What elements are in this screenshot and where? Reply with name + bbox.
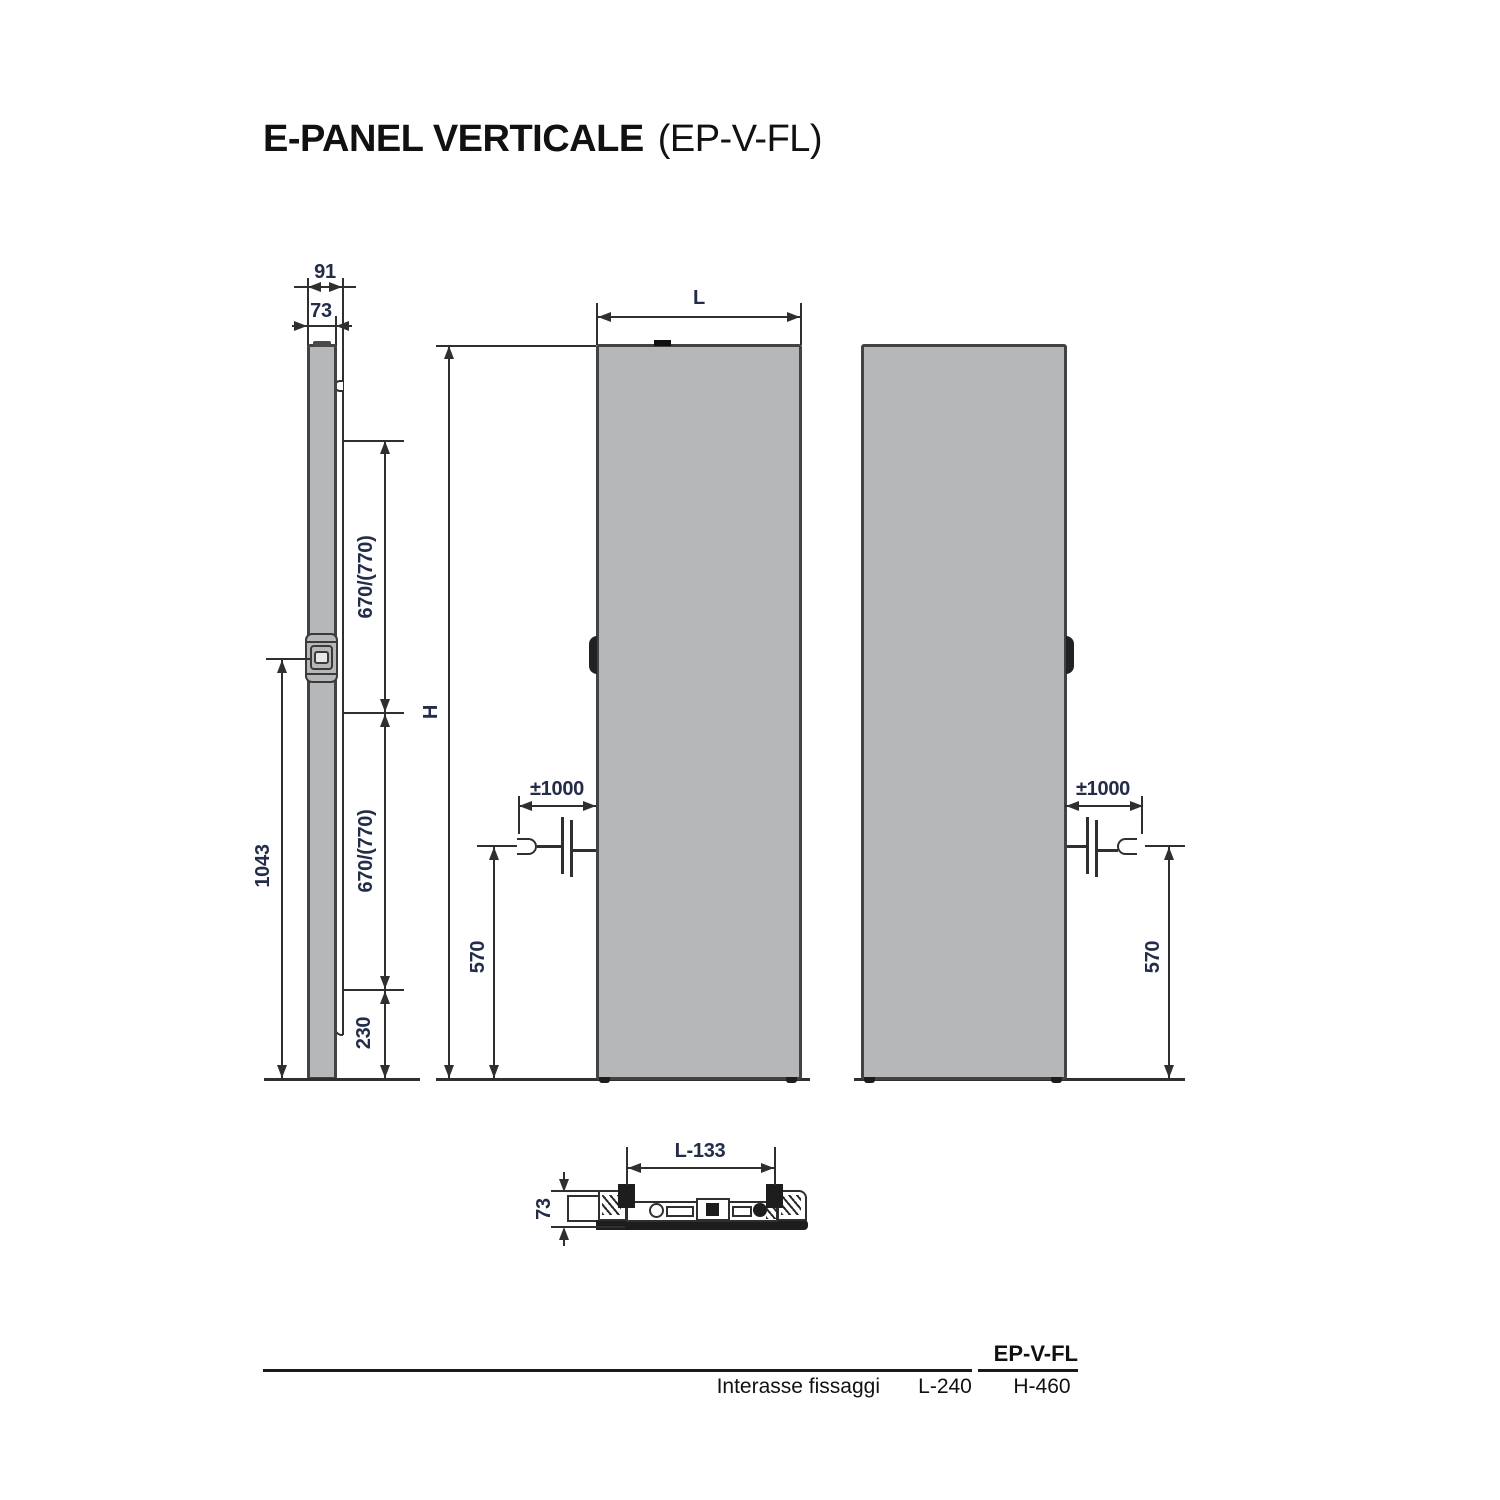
section-roller xyxy=(649,1203,664,1218)
table-l-value: L-240 xyxy=(910,1375,980,1399)
diagram-canvas: E-PANEL VERTICALE(EP-V-FL) 91 73 1043 67… xyxy=(0,0,1500,1500)
table-rule xyxy=(263,1369,972,1372)
section-component xyxy=(666,1206,694,1217)
radiator-back-panel xyxy=(861,344,1067,1080)
dimension-ext-line xyxy=(774,1147,776,1185)
arrow-icon xyxy=(559,1179,569,1192)
arrow-icon xyxy=(294,321,307,331)
arrow-icon xyxy=(1164,1065,1174,1078)
arrow-icon xyxy=(628,1163,641,1173)
arrow-icon xyxy=(380,714,390,727)
cable-break-mark xyxy=(561,817,564,874)
control-box-band xyxy=(306,641,337,643)
side-top-cap xyxy=(313,341,331,347)
dim-label-91: 91 xyxy=(303,261,347,283)
table-model-header: EP-V-FL xyxy=(978,1341,1078,1367)
dimension-tick xyxy=(344,440,404,442)
mounting-post xyxy=(766,1184,783,1208)
mounting-post xyxy=(618,1184,635,1208)
cable-line xyxy=(571,849,596,852)
control-knob-edge xyxy=(1066,636,1074,674)
section-center-square xyxy=(706,1203,719,1216)
arrow-icon xyxy=(1066,801,1079,811)
dimension-tick xyxy=(344,712,404,714)
dimension-line xyxy=(626,1167,775,1169)
arrow-icon xyxy=(489,847,499,860)
arrow-icon xyxy=(380,699,390,712)
dimension-ext-line xyxy=(596,303,598,345)
control-knob-edge xyxy=(589,636,597,674)
arrow-icon xyxy=(444,346,454,359)
section-hatch xyxy=(781,1195,801,1215)
cable-plug-fork xyxy=(1117,838,1137,855)
section-dot xyxy=(753,1203,767,1217)
arrow-icon xyxy=(1130,801,1143,811)
dim-label-cable-length: ±1000 xyxy=(1063,778,1143,800)
radiator-side-profile xyxy=(307,344,337,1080)
table-rule xyxy=(978,1369,1078,1372)
wall-bracket-box xyxy=(567,1195,600,1222)
control-box-slot xyxy=(314,651,329,664)
arrow-icon xyxy=(380,976,390,989)
dim-label-230: 230 xyxy=(353,1003,375,1063)
dim-label-570: 570 xyxy=(1142,927,1164,987)
arrow-icon xyxy=(277,660,287,673)
dim-label-H: H xyxy=(420,690,442,734)
cable-line xyxy=(1067,845,1087,848)
arrow-icon xyxy=(336,321,349,331)
dim-label-L133: L-133 xyxy=(660,1140,740,1162)
dimension-line xyxy=(448,346,450,1078)
front-top-clip xyxy=(654,340,671,346)
front-foot xyxy=(599,1077,610,1083)
arrow-icon xyxy=(380,991,390,1004)
arrow-icon xyxy=(761,1163,774,1173)
arrow-icon xyxy=(598,312,611,322)
radiator-front-panel xyxy=(596,344,802,1080)
dimension-line xyxy=(294,286,356,288)
arrow-icon xyxy=(277,1065,287,1078)
dim-label-73: 73 xyxy=(299,300,343,322)
back-foot xyxy=(864,1077,875,1083)
table-row-label: Interasse fissaggi xyxy=(695,1375,880,1399)
dimension-tick xyxy=(344,989,404,991)
section-component xyxy=(732,1206,752,1217)
dim-label-1043: 1043 xyxy=(252,831,274,901)
front-foot xyxy=(786,1077,797,1083)
dimension-tick xyxy=(436,345,596,347)
dimension-line xyxy=(1168,847,1170,1078)
cable-line xyxy=(537,845,563,848)
dim-label-L: L xyxy=(677,287,721,309)
page-title-main: E-PANEL VERTICALE xyxy=(263,118,644,160)
dimension-line xyxy=(493,847,495,1078)
arrow-icon xyxy=(1164,847,1174,860)
dim-label-670-bottom: 670/(770) xyxy=(355,809,377,893)
arrow-icon xyxy=(380,1065,390,1078)
cable-line xyxy=(1096,849,1118,852)
page-title-suffix: (EP-V-FL) xyxy=(658,118,822,160)
cable-break-mark xyxy=(1086,817,1089,874)
dimension-tick xyxy=(266,658,310,660)
cable-plug-fork xyxy=(517,838,537,855)
floor-line xyxy=(264,1078,420,1081)
control-box-band xyxy=(306,673,337,675)
arrow-icon xyxy=(787,312,800,322)
dim-label-670-top: 670/(770) xyxy=(355,535,377,619)
arrow-icon xyxy=(559,1227,569,1240)
page-title: E-PANEL VERTICALE(EP-V-FL) xyxy=(263,118,822,161)
arrow-icon xyxy=(444,1065,454,1078)
arrow-icon xyxy=(308,282,321,292)
arrow-icon xyxy=(519,801,532,811)
dimension-line xyxy=(281,660,283,1078)
dim-label-cable-length: ±1000 xyxy=(517,778,597,800)
dim-label-73-depth: 73 xyxy=(533,1187,555,1231)
dimension-ext-line xyxy=(800,303,802,345)
dimension-line xyxy=(596,316,802,318)
arrow-icon xyxy=(380,441,390,454)
arrow-icon xyxy=(583,801,596,811)
back-foot xyxy=(1051,1077,1062,1083)
dim-label-570: 570 xyxy=(467,927,489,987)
arrow-icon xyxy=(489,1065,499,1078)
arrow-icon xyxy=(329,282,342,292)
table-h-value: H-460 xyxy=(1006,1375,1078,1399)
